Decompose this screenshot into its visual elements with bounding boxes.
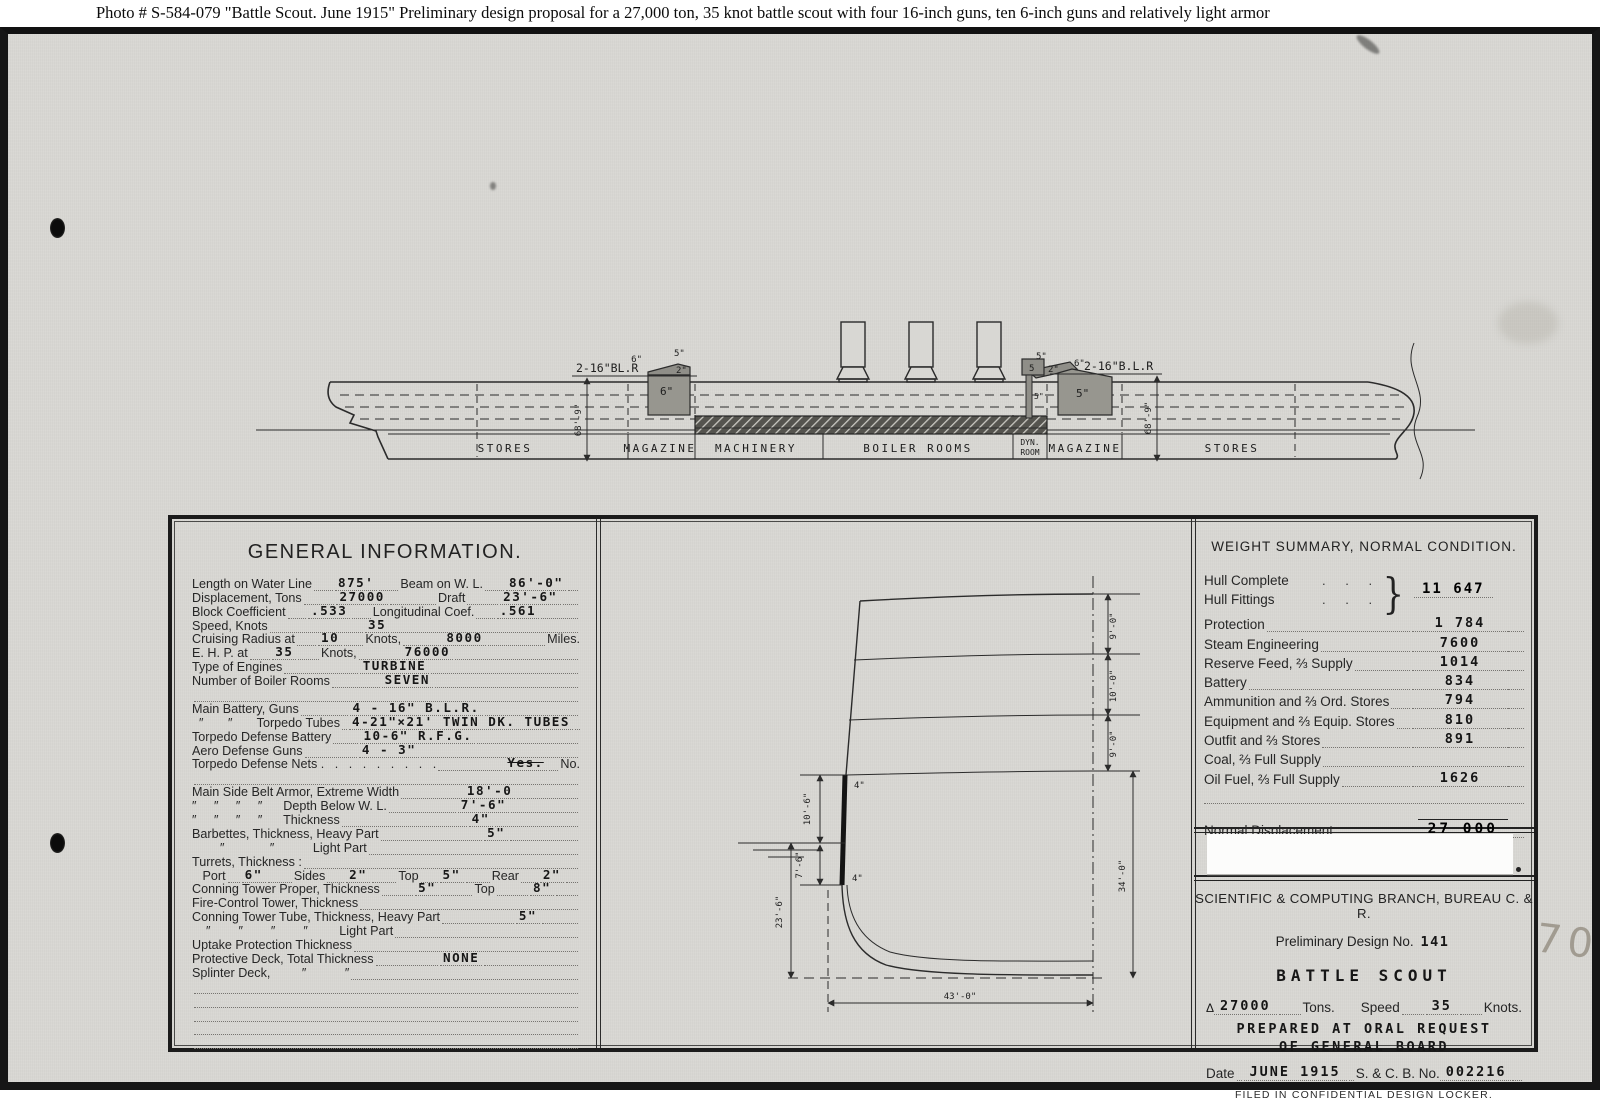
field-value: 5" [415, 880, 439, 896]
field-label: Beam on W. L. [400, 577, 483, 591]
dotted-leader [549, 770, 559, 771]
dim-label: 43'-0" [944, 992, 977, 1002]
dotted-leader [1267, 631, 1410, 632]
field-label: Battery [1204, 675, 1247, 690]
field-label: Barbettes, Thickness, Heavy Part [192, 827, 379, 841]
dotted-leader [333, 743, 358, 744]
dotted-leader [342, 729, 347, 730]
conning-tower: 5 5" [1022, 359, 1044, 418]
field-label: Preliminary Design No. [1276, 934, 1414, 949]
field-value: 35 [1426, 998, 1458, 1015]
dotted-leader [510, 840, 578, 841]
dotted-leader [1513, 1080, 1523, 1081]
field-label: Fire-Control Tower, Thickness [192, 896, 358, 910]
deck-line [860, 594, 1093, 601]
dotted-leader [556, 895, 578, 896]
info-line: Conning Tower Proper, Thickness5"Top8" [192, 883, 580, 897]
info-line: Protective Deck, Total ThicknessNONE [192, 952, 580, 966]
dotted-leader [517, 798, 578, 799]
compartment-label: STORES [1205, 442, 1260, 455]
dotted-leader [1508, 747, 1524, 748]
field-label: ″ ″ ″ ″ Light Part [192, 924, 393, 938]
dotted-leader [401, 798, 462, 799]
field-value: 2" [346, 867, 370, 883]
info-line: Conning Tower Tube, Thickness, Heavy Par… [192, 910, 580, 924]
photo-caption: Photo # S-584-079 "Battle Scout. June 19… [96, 3, 1270, 23]
field-value: 1 784 [1412, 615, 1508, 632]
dotted-leader [376, 965, 438, 966]
dotted-leader [1508, 689, 1524, 690]
armor-label: 5 [1029, 364, 1034, 374]
info-line: Barbettes, Thickness, Heavy Part5" [192, 827, 580, 841]
field-label: Displacement, Tons [192, 591, 302, 605]
field-label: Knots. [1484, 1000, 1522, 1015]
field-label: Rear [492, 869, 519, 883]
displacement-speed-line: Δ 27000 Tons. Speed 35 Knots. [1206, 995, 1522, 1015]
field-label: Outfit and ⅔ Stores [1204, 733, 1320, 748]
dotted-leader [1237, 1080, 1242, 1081]
field-label: Protective Deck, Total Thickness [192, 952, 374, 966]
armor-label: 5" [674, 349, 685, 359]
field-label: ″ ″ ″ ″ Thickness [192, 813, 340, 827]
pencil-note: 70 [1533, 915, 1600, 968]
weight-row: Equipment and ⅔ Equip. Stores810 [1204, 709, 1524, 728]
funnel-icon [973, 322, 1005, 382]
field-label: ″ ″ Light Part [192, 841, 367, 855]
weight-row: Ammunition and ⅔ Ord. Stores794 [1204, 690, 1524, 709]
info-line: Number of Boiler RoomsSEVEN [192, 674, 580, 688]
field-label: Date [1206, 1066, 1235, 1081]
dim-label: 9'-0" [1109, 730, 1119, 757]
dotted-leader [1460, 1014, 1482, 1015]
field-label: Sides [294, 869, 326, 883]
weight-row: Outfit and ⅔ Stores891 [1204, 729, 1524, 748]
dotted-leader [395, 937, 578, 938]
dim-label: 34'-0" [1118, 860, 1128, 893]
dotted-leader [1508, 651, 1524, 652]
field-label: ″ ″ Torpedo Tubes [192, 716, 340, 730]
dotted-leader [1322, 747, 1410, 748]
field-label: Conning Tower Proper, Thickness [192, 882, 380, 896]
dotted-leader [194, 993, 578, 994]
field-label: Equipment and ⅔ Equip. Stores [1204, 714, 1395, 729]
leader-dots: . . . [1322, 592, 1380, 607]
dotted-leader [431, 673, 578, 674]
field-value: 35 [365, 617, 389, 633]
branch-line: SCIENTIFIC & COMPUTING BRANCH, BUREAU C.… [1194, 891, 1534, 921]
weight-summary-body: Hull Complete . . . Hull Fittings . . . … [1204, 573, 1524, 838]
field-label: Tons. [1303, 1000, 1335, 1015]
section-dimensions: 9'-0" 10'-0" 9'-0" 34'-0" 10'-6" 7'-6" 2… [775, 594, 1133, 1003]
hole-punch-top [50, 218, 65, 238]
dotted-leader [194, 1007, 578, 1008]
design-number-line: Preliminary Design No. 141 [1194, 934, 1534, 950]
info-line: Splinter Deck, ″ ″ [192, 966, 580, 980]
dotted-leader [194, 1048, 578, 1049]
field-value: 5" [516, 908, 540, 924]
dotted-leader [1349, 1080, 1354, 1081]
dotted-leader [351, 979, 578, 980]
section-structure [738, 576, 1140, 1012]
field-value: 891 [1412, 731, 1508, 748]
hole-punch-bottom [50, 833, 65, 853]
field-label: Aero Defense Guns [192, 744, 303, 758]
field-value: 834 [1412, 673, 1508, 690]
weight-rows: Protection1 784Steam Engineering7600Rese… [1204, 613, 1524, 787]
field-label: Steam Engineering [1204, 637, 1319, 652]
info-line: ″ ″ Light Part [192, 841, 580, 855]
field-label: Splinter Deck, ″ ″ [192, 966, 349, 980]
weight-summary-panel: WEIGHT SUMMARY, NORMAL CONDITION. Hull C… [1194, 525, 1534, 829]
dotted-leader [484, 965, 578, 966]
dotted-leader [297, 645, 316, 646]
field-value: 1014 [1412, 654, 1508, 671]
midship-section-drawing: 9'-0" 10'-0" 9'-0" 34'-0" 10'-6" 7'-6" 2… [588, 488, 1193, 1033]
armor-label: 5" [1076, 387, 1089, 400]
field-label: Knots, [365, 632, 401, 646]
machinery-hatch-band [695, 416, 1047, 434]
field-value: 11 647 [1414, 581, 1493, 598]
info-line: Main Side Belt Armor, Extreme Width18'-0 [192, 785, 580, 799]
funnel-icon [905, 322, 937, 382]
field-value [1412, 766, 1508, 767]
compartment-labels: STORES MAGAZINE MACHINERY BOILER ROOMS D… [478, 438, 1260, 457]
dotted-leader [194, 1021, 578, 1022]
dotted-leader [455, 659, 578, 660]
dotted-leader [369, 854, 578, 855]
weight-summary-title: WEIGHT SUMMARY, NORMAL CONDITION. [1194, 539, 1534, 554]
compartment-label: STORES [478, 442, 533, 455]
field-value: 1626 [1412, 770, 1508, 787]
dotted-leader [476, 618, 494, 619]
field-value: 002216 [1440, 1064, 1513, 1081]
field-value: Yes. [504, 755, 546, 771]
field-value: SEVEN [382, 672, 433, 688]
compartment-label: ROOM [1020, 448, 1039, 457]
leader-dots: . . . [1322, 573, 1380, 588]
field-label: Conning Tower Tube, Thickness, Heavy Par… [192, 910, 440, 924]
dotted-leader [298, 659, 319, 660]
title-block: SCIENTIFIC & COMPUTING BRANCH, BUREAU C.… [1194, 881, 1534, 1048]
field-label: ″ ″ ″ ″ Depth Below W. L. [192, 799, 387, 813]
info-line [192, 771, 580, 785]
info-line: ″ ″ ″ ″ Thickness4" [192, 813, 580, 827]
field-label: Ammunition and ⅔ Ord. Stores [1204, 694, 1389, 709]
dotted-leader [1342, 786, 1410, 787]
dim-label: 10'-0" [1109, 670, 1119, 703]
field-value: 27000 [1214, 998, 1277, 1015]
compartment-label: DYN. [1020, 438, 1039, 447]
dotted-leader [1508, 708, 1524, 709]
field-value: 4 - 3" [359, 742, 420, 758]
armor-label: 5" [1034, 392, 1044, 401]
dim-label: 10'-6" [803, 793, 813, 826]
dotted-leader [381, 840, 483, 841]
dotted-leader [1508, 631, 1524, 632]
dotted-leader [511, 812, 578, 813]
weight-row: Reserve Feed, ⅔ Supply1014 [1204, 652, 1524, 671]
field-label: Block Coefficient [192, 605, 286, 619]
field-label: Main Side Belt Armor, Extreme Width [192, 785, 399, 799]
info-line [192, 1022, 580, 1036]
info-line: Speed, Knots35 [192, 619, 580, 633]
dotted-leader [1323, 766, 1410, 767]
field-label: Port [192, 869, 226, 883]
field-value: 141 [1417, 934, 1452, 950]
field-label: Coal, ⅔ Full Supply [1204, 752, 1321, 767]
dotted-leader [1508, 670, 1524, 671]
dim-label-forward: 68'-9" [1144, 402, 1154, 435]
weight-row: Protection1 784 [1204, 613, 1524, 632]
dotted-leader [421, 757, 578, 758]
dotted-leader [435, 687, 578, 688]
info-line: Uptake Protection Thickness [192, 938, 580, 952]
side-plating [846, 601, 860, 775]
weight-row: Steam Engineering7600 [1204, 632, 1524, 651]
field-label: Draft [438, 591, 465, 605]
dotted-leader [575, 729, 580, 730]
field-value: JUNE 1915 [1244, 1064, 1347, 1081]
field-label: Miles. [547, 632, 580, 646]
dim-label: 9'-0" [1109, 612, 1119, 639]
dotted-leader [1508, 766, 1524, 767]
dotted-leader [477, 743, 578, 744]
dim-label: 7'-6" [795, 851, 805, 878]
info-line: ″ ″ ″ ″ Light Part [192, 924, 580, 938]
dotted-leader [1402, 1014, 1424, 1015]
armor-belt [842, 775, 845, 885]
deck-line [849, 715, 1093, 720]
compartment-label: MACHINERY [715, 442, 797, 455]
field-value: 5" [440, 867, 464, 883]
belt-thickness-label: 4" [854, 781, 865, 791]
dotted-leader [542, 923, 578, 924]
break-line [1411, 343, 1423, 479]
compartment-label: MAGAZINE [624, 442, 697, 455]
dotted-leader [1391, 708, 1410, 709]
field-value: 7600 [1412, 635, 1508, 652]
redaction-trailing-dot [1516, 867, 1521, 872]
prepared-line-1: PREPARED AT ORAL REQUEST [1194, 1021, 1534, 1037]
dim-label: 23'-6" [775, 896, 785, 929]
deck-line [846, 771, 1093, 775]
smudge-mark [490, 182, 496, 190]
field-label: Speed, Knots [192, 619, 268, 633]
field-label: Torpedo Defense Nets . . . . . . . . . [192, 757, 436, 771]
belt-thickness-label: 4" [852, 874, 863, 884]
field-label: Knots, [321, 646, 357, 660]
dotted-leader [1508, 728, 1524, 729]
dotted-leader [566, 882, 578, 883]
field-label: Hull Fittings [1204, 592, 1275, 607]
funnel-icons [837, 322, 1005, 382]
dotted-leader [332, 687, 380, 688]
scanned-photo-page: { "caption": "Photo # S-584-079 \"Battle… [0, 0, 1600, 1090]
deck-line [854, 654, 1093, 660]
dotted-leader [541, 618, 578, 619]
dotted-leader [1321, 651, 1410, 652]
inner-bottom [847, 885, 1093, 961]
field-label: Top [474, 882, 494, 896]
field-label: S. & C. B. No. [1356, 1066, 1440, 1081]
field-label: Main Battery, Guns [192, 702, 299, 716]
dotted-leader [1397, 728, 1410, 729]
caption-bar: Photo # S-584-079 "Battle Scout. June 19… [0, 0, 1600, 27]
dotted-leader [438, 770, 502, 771]
info-line [192, 1035, 580, 1049]
info-line: Torpedo Defense Nets . . . . . . . . .Ye… [192, 758, 580, 772]
dotted-leader [288, 618, 306, 619]
dotted-leader [442, 923, 514, 924]
general-info-lines: Length on Water Line875'Beam on W. L.86'… [192, 577, 580, 1049]
info-line [192, 1008, 580, 1022]
smudge-mark [1498, 302, 1558, 344]
dotted-leader [389, 812, 456, 813]
dotted-leader [563, 604, 578, 605]
field-label: E. H. P. at [192, 646, 248, 660]
filed-line: FILED IN CONFIDENTIAL DESIGN LOCKER. [1194, 1089, 1534, 1101]
info-line [192, 980, 580, 994]
general-info-title: GENERAL INFORMATION. [178, 541, 592, 564]
weight-row: Oil Fuel, ⅔ Full Supply1626 [1204, 767, 1524, 786]
ship-type-title: BATTLE SCOUT [1194, 966, 1534, 985]
brace-glyph: } [1383, 569, 1404, 618]
bow-stem [1368, 382, 1414, 459]
compartment-label: MAGAZINE [1049, 442, 1122, 455]
smudge-mark [1354, 32, 1382, 56]
field-label: Oil Fuel, ⅔ Full Supply [1204, 772, 1340, 787]
dotted-leader [314, 590, 333, 591]
general-info-panel: GENERAL INFORMATION. Length on Water Lin… [178, 525, 592, 1042]
dotted-leader [497, 895, 528, 896]
dotted-leader [568, 590, 578, 591]
field-value: .533 [308, 603, 350, 619]
field-value: 810 [1412, 712, 1508, 729]
field-label: Uptake Protection Thickness [192, 938, 352, 952]
field-value: 5" [484, 825, 508, 841]
field-value: 794 [1412, 692, 1508, 709]
field-label: Length on Water Line [192, 577, 312, 591]
compartment-label: BOILER ROOMS [863, 442, 972, 455]
dotted-leader [488, 645, 545, 646]
weight-row: Coal, ⅔ Full Supply [1204, 748, 1524, 767]
scan-paper: 70 [0, 27, 1600, 1090]
barbette-forward: 5" 2" 5" 6" 2-16"B.L.R [1028, 352, 1162, 415]
funnel-icon [837, 322, 869, 382]
dotted-leader [382, 895, 413, 896]
dotted-leader [1279, 1014, 1301, 1015]
info-line: ″ ″ ″ ″ Depth Below W. L.7'-6" [192, 799, 580, 813]
field-value: NONE [440, 950, 482, 966]
field-label: Protection [1204, 617, 1265, 632]
info-line: Port6"Sides2"Top5"Rear2" [192, 869, 580, 883]
weight-row: Battery834 [1204, 671, 1524, 690]
field-value: .561 [497, 603, 539, 619]
dotted-leader [194, 1034, 578, 1035]
date-line: Date JUNE 1915 S. & C. B. No. 002216 [1206, 1061, 1522, 1081]
field-value: 10 [318, 630, 342, 646]
field-label: No. [560, 757, 580, 771]
dotted-leader [441, 895, 472, 896]
field-label: Number of Boiler Rooms [192, 674, 330, 688]
field-label: Torpedo Defense Battery [192, 730, 331, 744]
field-label: Reserve Feed, ⅔ Supply [1204, 656, 1353, 671]
redaction-bar [1207, 834, 1513, 874]
hull-weight-group: Hull Complete . . . Hull Fittings . . . … [1204, 573, 1524, 613]
dotted-separator [1204, 793, 1524, 804]
profile-drawing: 6" 5" 2" 6" 2-16"BL.R 5" 2" 5" 6" 2-16"B… [250, 285, 1480, 495]
displacement-symbol: Δ [1206, 1001, 1214, 1015]
dim-label-aft: 68'-9" [574, 404, 584, 437]
stern-profile [328, 382, 388, 459]
field-label: Speed [1361, 1000, 1400, 1015]
gun-label-forward: 2-16"B.L.R [1084, 359, 1153, 373]
dotted-leader [1355, 670, 1410, 671]
gun-label-aft: 2-16"BL.R [576, 361, 638, 375]
armor-label: 2" [1048, 365, 1059, 375]
dotted-leader [1249, 689, 1410, 690]
armor-label: 2" [676, 366, 687, 376]
field-label: Type of Engines [192, 660, 282, 674]
dotted-leader [1508, 786, 1524, 787]
field-value: 8" [530, 880, 554, 896]
info-line [192, 994, 580, 1008]
armor-label: 6" [660, 385, 673, 398]
prepared-line-2: OF GENERAL BOARD [1194, 1039, 1534, 1055]
field-value: 6" [242, 867, 266, 883]
info-line: Cruising Radius at10Knots,8000Miles. [192, 633, 580, 647]
field-value: 35 [272, 644, 296, 660]
field-label: Hull Complete [1204, 573, 1289, 588]
